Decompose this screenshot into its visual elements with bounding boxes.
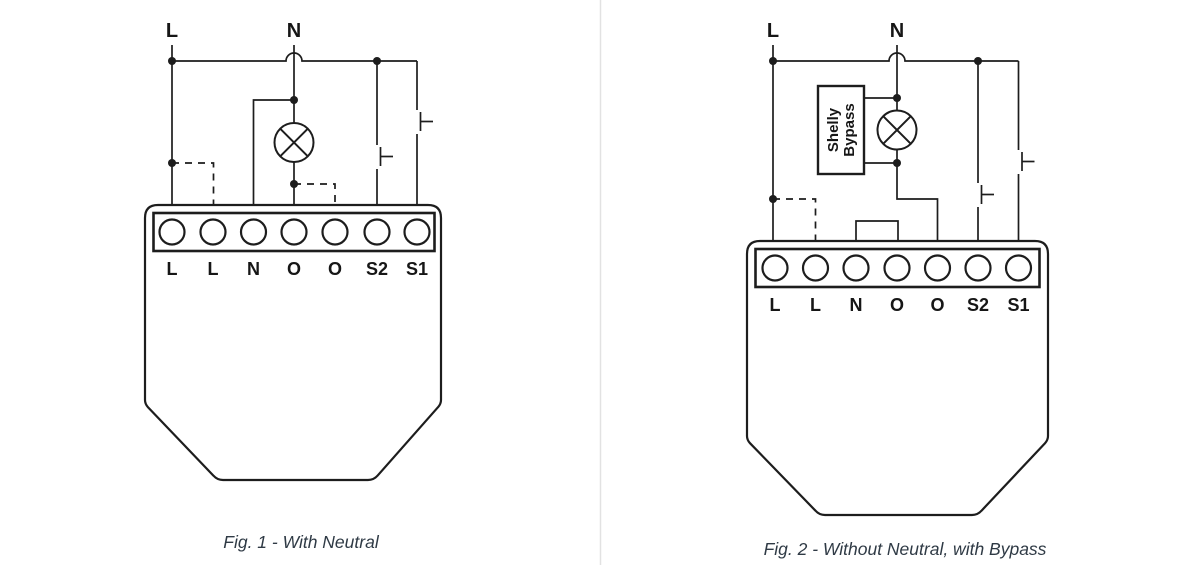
terminal-hole-o2: [925, 256, 950, 281]
terminal-hole-s2: [966, 256, 991, 281]
bypass-label-line1: Shelly: [825, 107, 842, 152]
terminal-hole-n: [241, 220, 266, 245]
terminal-hole-s1: [405, 220, 430, 245]
shelly-bypass-box: Shelly Bypass: [818, 86, 864, 174]
terminal-label-o1: O: [890, 295, 904, 315]
terminal-hole-n: [844, 256, 869, 281]
terminal-label-l1: L: [167, 259, 178, 279]
terminal-label-o2: O: [930, 295, 944, 315]
dashed-o2-wire: [294, 184, 335, 205]
lamp-icon: [878, 111, 917, 150]
terminal-label-s1: S1: [406, 259, 428, 279]
figure-1-with-neutral: L N L L N O O S2 S1 Fig. 1 - With Neutra…: [145, 20, 441, 552]
terminal-label-s2: S2: [967, 295, 989, 315]
lamp-cross: [280, 129, 308, 157]
junction-dot: [168, 57, 176, 65]
supply-l-label: L: [166, 20, 178, 42]
junction-dot: [893, 94, 901, 102]
figure-2-without-neutral: Shelly Bypass: [747, 20, 1048, 559]
terminal-label-o2: O: [328, 259, 342, 279]
shelly-wiring-diagrams: L N L L N O O S2 S1 Fig. 1 - With Neutra…: [0, 0, 1200, 565]
supply-n-label: N: [287, 20, 301, 42]
junction-dots-fig1: [168, 57, 381, 188]
relay-body-outline: [145, 205, 441, 480]
junction-dot: [769, 57, 777, 65]
terminal-hole-l1: [160, 220, 185, 245]
terminal-hole-s1: [1006, 256, 1031, 281]
terminal-label-s2: S2: [366, 259, 388, 279]
n-o-jumper-wire: [856, 221, 898, 241]
switch-s2-icon: [381, 147, 394, 166]
terminal-label-n: N: [850, 295, 863, 315]
terminal-label-n: N: [247, 259, 260, 279]
dashed-l2-wire: [773, 199, 816, 241]
figure-1-caption: Fig. 1 - With Neutral: [223, 532, 380, 552]
terminal-label-s1: S1: [1007, 295, 1029, 315]
junction-dot: [290, 180, 298, 188]
junction-dots-fig2: [769, 57, 982, 203]
junction-dot: [769, 195, 777, 203]
supply-l-label: L: [767, 20, 779, 42]
junction-dot: [290, 96, 298, 104]
junction-dot: [373, 57, 381, 65]
circuit-wires-fig2: [773, 45, 1035, 241]
terminal-label-o1: O: [287, 259, 301, 279]
terminal-hole-o2: [323, 220, 348, 245]
bypass-label-line2: Bypass: [841, 103, 858, 156]
lamp-icon: [275, 123, 314, 162]
junction-dot: [168, 159, 176, 167]
terminal-label-l2: L: [208, 259, 219, 279]
switch-s1-icon: [1022, 152, 1035, 171]
lamp-cross: [883, 116, 911, 144]
terminal-hole-l1: [763, 256, 788, 281]
terminal-label-l1: L: [770, 295, 781, 315]
bypass-label: Shelly Bypass: [825, 103, 858, 156]
terminal-hole-o1: [282, 220, 307, 245]
lamp-output-wire: [897, 150, 938, 242]
dashed-l2-wire: [172, 163, 214, 205]
terminal-hole-l2: [201, 220, 226, 245]
n-terminal-branch-wire: [254, 100, 295, 205]
relay-device-fig1: [145, 205, 441, 480]
figure-2-caption: Fig. 2 - Without Neutral, with Bypass: [764, 539, 1047, 559]
terminal-label-l2: L: [810, 295, 821, 315]
junction-dot: [893, 159, 901, 167]
switch-s2-icon: [982, 185, 995, 204]
relay-device-fig2: [747, 241, 1048, 515]
terminal-hole-l2: [803, 256, 828, 281]
terminal-hole-o1: [885, 256, 910, 281]
terminal-hole-s2: [365, 220, 390, 245]
relay-body-outline: [747, 241, 1048, 515]
junction-dot: [974, 57, 982, 65]
switch-s1-icon: [421, 112, 434, 131]
supply-n-label: N: [890, 20, 904, 42]
diagram-svg: L N L L N O O S2 S1 Fig. 1 - With Neutra…: [0, 0, 1200, 565]
